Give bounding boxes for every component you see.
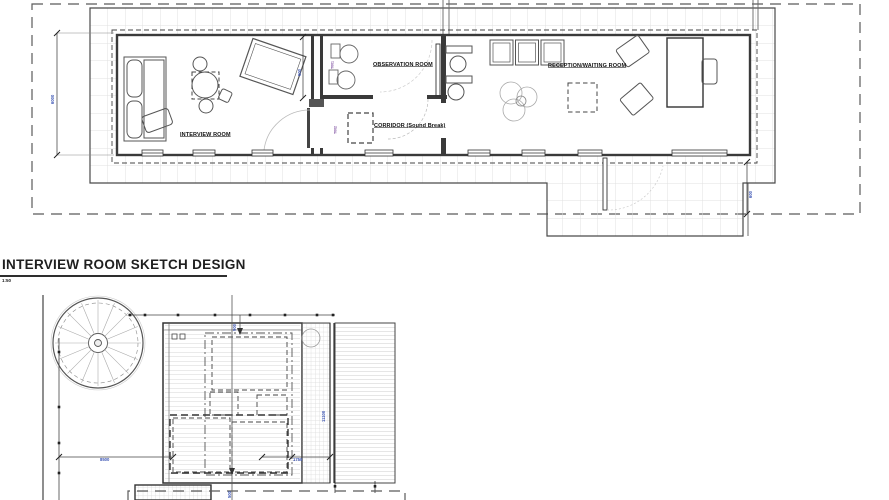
door-tag-observation: T001 xyxy=(331,61,335,69)
dim-walkway-width: 1750 xyxy=(293,458,302,462)
site-dim-left xyxy=(58,338,61,500)
room-label-interview: INTERVIEW ROOM xyxy=(180,132,231,138)
site-dim-top xyxy=(128,314,335,317)
sheet-title: INTERVIEW ROOM SKETCH DESIGN xyxy=(2,258,246,272)
dim-roof-offset: 900 xyxy=(233,324,237,331)
room-label-observation: OBSERVATION ROOM xyxy=(373,62,433,68)
dim-deck-edge: 600 xyxy=(749,191,753,198)
dim-deck-offset: 500 xyxy=(228,491,232,498)
title-underline xyxy=(0,275,227,277)
plan-linework xyxy=(0,0,889,500)
room-label-reception: RECEPTION/WAITING ROOM xyxy=(548,63,626,69)
floor-plan xyxy=(32,0,860,236)
reception-desk xyxy=(667,38,703,107)
dim-room-height: 6000 xyxy=(51,95,55,104)
circular-feature xyxy=(51,296,145,390)
drawing-sheet: INTERVIEW ROOM OBSERVATION ROOM CORRIDOR… xyxy=(0,0,889,500)
dim-building-length: 11100 xyxy=(322,411,326,422)
roof-side-panel xyxy=(335,323,395,483)
sheet-scale: 1:50 xyxy=(2,279,11,284)
door-leaf-deck xyxy=(603,158,607,210)
deck-strip xyxy=(302,323,330,483)
room-label-corridor: CORRIDOR (Sound Break) xyxy=(374,123,445,129)
dim-sound-break: 900 xyxy=(298,69,302,76)
lower-structure xyxy=(135,485,211,500)
dim-building-width: 8500 xyxy=(100,458,109,462)
door-leaf-interview xyxy=(307,108,310,148)
site-plan xyxy=(43,295,405,500)
door-tag-corridor: T002 xyxy=(334,126,338,134)
